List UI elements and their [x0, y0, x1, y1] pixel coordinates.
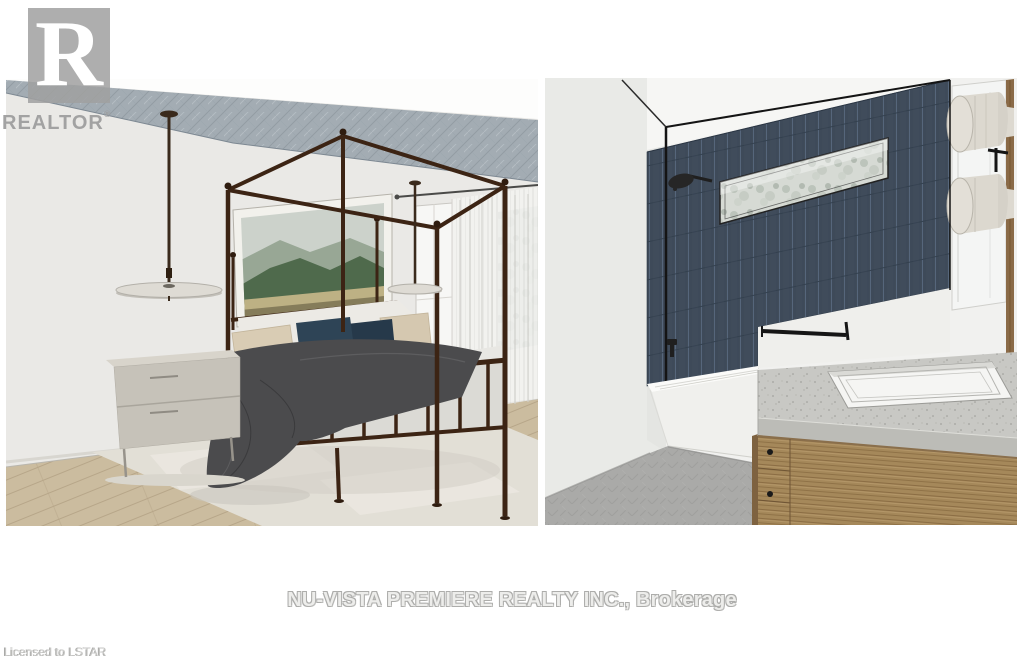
vanity: [752, 352, 1017, 526]
cabinet-knob: [767, 449, 773, 455]
bathroom-panel: [545, 78, 1017, 526]
cabinet-knob: [767, 491, 773, 497]
bedroom-panel: [6, 79, 538, 526]
listing-image: [0, 0, 1024, 663]
